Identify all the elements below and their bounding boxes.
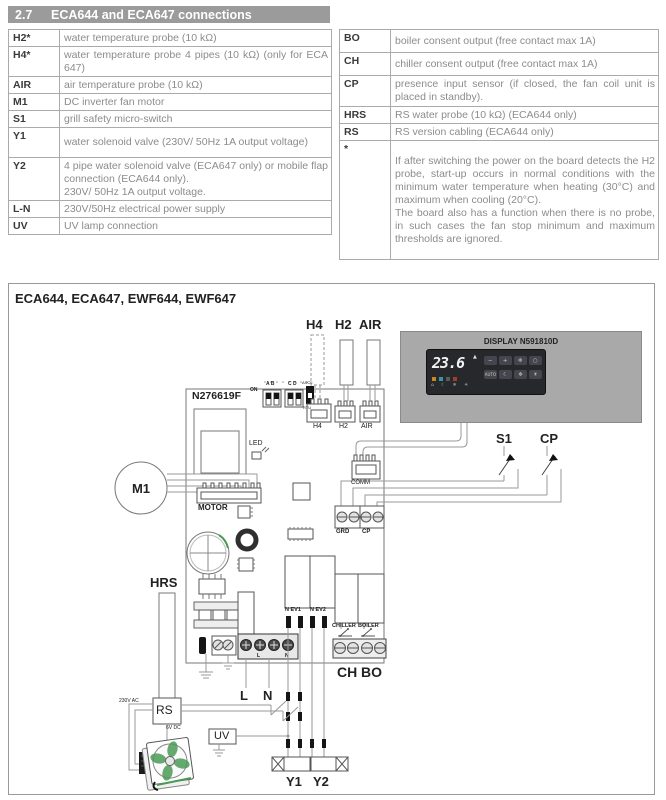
term-cell: H2* (9, 30, 60, 46)
dip-switch-ab (263, 390, 281, 407)
term-cell: H4* (9, 47, 60, 76)
dip-switch-cd (285, 390, 303, 407)
comm-label: COMM (351, 480, 370, 486)
desc-cell: 4 pipe water solenoid valve (ECA647 only… (60, 159, 331, 200)
section-number: 2.7 (8, 8, 51, 22)
board-code: N276619F (192, 390, 241, 402)
230vac-label: 230V AC (119, 698, 139, 704)
term-cell: RS (340, 124, 391, 140)
led-label: LED (249, 440, 263, 447)
desc-cell: RS water probe (10 kΩ) (ECA644 only) (391, 108, 658, 123)
diagram-title: ECA644, ECA647, EWF644, EWF647 (15, 291, 236, 306)
h2-connector-label: H2 (339, 423, 348, 430)
status-icons: ⌂ ☾ ❄ ☀ (431, 383, 471, 388)
m1-label: M1 (126, 481, 156, 496)
desc-cell: water solenoid valve (230V/ 50Hz 1A outp… (60, 135, 331, 150)
desc-cell: boiler consent output (free contact max … (391, 34, 658, 49)
cp-terminal-label: CP (362, 529, 370, 535)
term-cell: Y2 (9, 158, 60, 200)
status-leds (432, 377, 457, 381)
h4-connector-label: H4 (313, 423, 322, 430)
display-unit: DISPLAY N591810D 23.6 ▲ ⌂ ☾ ❄ ☀ − + ❄ ○ … (400, 331, 642, 423)
desc-cell: chiller consent output (free contact max… (391, 57, 658, 72)
plus-button[interactable]: + (499, 356, 512, 365)
desc-cell: If after switching the power on the boar… (391, 154, 658, 247)
air-probe-label: AIR (359, 317, 381, 332)
minus-button[interactable]: − (484, 356, 497, 365)
h2-probe-label: H2 (335, 317, 352, 332)
wiring-diagram: L N (8, 283, 655, 795)
desc-cell: UV lamp connection (60, 219, 331, 234)
chiller-boiler-section (333, 574, 386, 658)
s1-label: S1 (496, 431, 512, 446)
n-label: N (263, 688, 272, 703)
table-row: AIRair temperature probe (10 kΩ) (9, 77, 331, 94)
table-row: M1DC inverter fan motor (9, 94, 331, 111)
desc-cell: water temperature probe 4 pipes (10 kΩ) … (60, 48, 331, 76)
manual-page: { "header": { "number": "2.7", "title": … (0, 0, 666, 800)
desc-cell: DC inverter fan motor (60, 95, 331, 110)
air-connector-label: AIR (361, 423, 373, 430)
h4-probe-label: H4 (306, 317, 323, 332)
ch-label: CH (337, 664, 357, 680)
auto-button[interactable]: AUTO (484, 370, 497, 379)
hrs-label: HRS (150, 575, 177, 590)
connections-table-left: H2*water temperature probe (10 kΩ) H4*wa… (8, 29, 332, 235)
term-cell: S1 (9, 111, 60, 127)
term-cell: HRS (340, 107, 391, 123)
desc-cell: 230V/50Hz electrical power supply (60, 202, 331, 217)
section-header: 2.7 ECA644 and ECA647 connections (8, 6, 330, 23)
svg-text:L: L (257, 653, 260, 659)
n-ev2-label: N EV2 (310, 607, 326, 613)
term-cell: CH (340, 53, 391, 75)
table-row: RSRS version cabling (ECA644 only) (340, 124, 658, 141)
term-cell: L-N (9, 201, 60, 217)
table-row: H4*water temperature probe 4 pipes (10 k… (9, 47, 331, 77)
chiller-label: CHILLER (332, 623, 356, 629)
desc-cell: water temperature probe (10 kΩ) (60, 31, 331, 46)
table-row: UVUV lamp connection (9, 218, 331, 235)
fan-speed-button[interactable]: ❄ (514, 370, 527, 379)
table-row: CPpresence input sensor (if closed, the … (340, 76, 658, 107)
motor-label: MOTOR (198, 503, 228, 512)
led-indicator (439, 377, 443, 381)
term-cell: UV (9, 218, 60, 234)
table-row: L-N230V/50Hz electrical power supply (9, 201, 331, 218)
desc-cell: presence input sensor (if closed, the fa… (391, 77, 658, 105)
table-row: BOboiler consent output (free contact ma… (340, 30, 658, 53)
table-row: H2*water temperature probe (10 kΩ) (9, 30, 331, 47)
dip-cd-label: C D (288, 381, 297, 387)
ascii-label: ASCII (302, 380, 312, 385)
led-indicator (432, 377, 436, 381)
table-row: CHchiller consent output (free contact m… (340, 53, 658, 76)
uv-label: UV (214, 730, 229, 742)
rtu-label: RTU (303, 405, 311, 410)
solenoid-valves (272, 757, 348, 771)
h4-connector (307, 399, 331, 422)
connections-table-right: BOboiler consent output (free contact ma… (339, 29, 659, 260)
table-row: S1grill safety micro-switch (9, 111, 331, 128)
term-cell: M1 (9, 94, 60, 110)
up-arrow-icon: ▲ (473, 354, 477, 360)
section-title: ECA644 and ECA647 connections (51, 8, 252, 22)
table-row: Y1water solenoid valve (230V/ 50Hz 1A ou… (9, 128, 331, 158)
night-button[interactable]: ☾ (499, 370, 512, 379)
y2-label: Y2 (313, 774, 329, 789)
desc-cell: RS version cabling (ECA644 only) (391, 125, 658, 140)
desc-cell: grill safety micro-switch (60, 112, 331, 127)
grd-cp-terminal (335, 506, 384, 528)
fan-button[interactable]: ❄ (514, 356, 527, 365)
n-ev1-label: N EV1 (285, 607, 301, 613)
h2-connector (335, 401, 355, 422)
term-cell: * (340, 141, 391, 259)
table-row: Y24 pipe water solenoid valve (ECA647 on… (9, 158, 331, 201)
term-cell: CP (340, 76, 391, 106)
desc-cell: air temperature probe (10 kΩ) (60, 78, 331, 93)
led-indicator (446, 377, 450, 381)
term-cell: Y1 (9, 128, 60, 157)
table-row: *If after switching the power on the boa… (340, 141, 658, 260)
display-panel: 23.6 ▲ ⌂ ☾ ❄ ☀ − + ❄ ○ AUTO ☾ ❄ (426, 349, 546, 395)
grd-label: GRD (336, 529, 349, 535)
dip-on-label: ON (250, 387, 258, 393)
display-buttons: − + ❄ ○ AUTO ☾ ❄ ☀ (484, 356, 542, 379)
6vdc-label: 6V DC (166, 725, 181, 731)
term-cell: BO (340, 30, 391, 52)
term-cell: AIR (9, 77, 60, 93)
dip-ab-label: A B (266, 381, 274, 387)
cp-switch-label: CP (540, 431, 558, 446)
led-indicator (453, 377, 457, 381)
mode-button[interactable]: ☀ (529, 370, 542, 379)
power-button[interactable]: ○ (529, 356, 542, 365)
boiler-label: BOILER (358, 623, 379, 629)
rs-label: RS (156, 703, 173, 717)
y1-label: Y1 (286, 774, 302, 789)
display-title: DISPLAY N591810D (401, 337, 641, 346)
bo-label: BO (361, 664, 382, 680)
table-row: HRSRS water probe (10 kΩ) (ECA644 only) (340, 107, 658, 124)
fan (139, 737, 194, 790)
temperature-readout: 23.6 (432, 354, 464, 372)
l-label: L (240, 688, 248, 703)
air-connector (360, 401, 380, 422)
